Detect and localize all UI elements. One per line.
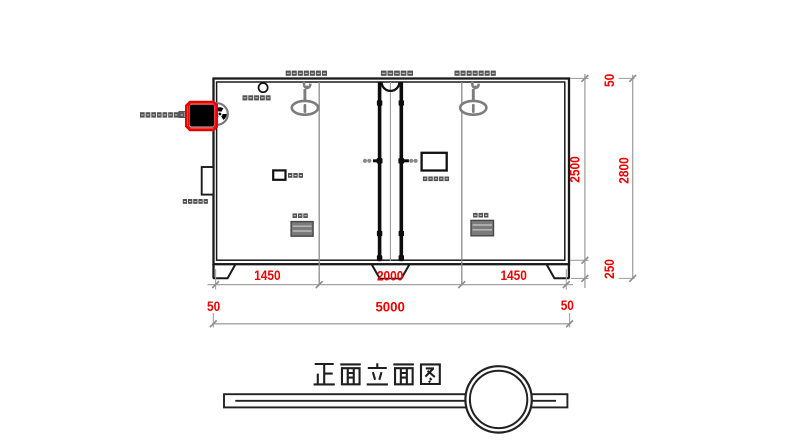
svg-text:50: 50 bbox=[601, 74, 617, 87]
svg-text:2500: 2500 bbox=[567, 156, 583, 183]
svg-text:1450: 1450 bbox=[500, 267, 527, 283]
svg-text:5000: 5000 bbox=[375, 298, 405, 314]
svg-text:2800: 2800 bbox=[615, 157, 631, 184]
svg-text:50: 50 bbox=[207, 298, 220, 314]
svg-text:250: 250 bbox=[601, 259, 617, 279]
svg-text:50: 50 bbox=[561, 297, 574, 313]
svg-text:1450: 1450 bbox=[254, 267, 281, 283]
svg-text:2000: 2000 bbox=[377, 267, 404, 283]
